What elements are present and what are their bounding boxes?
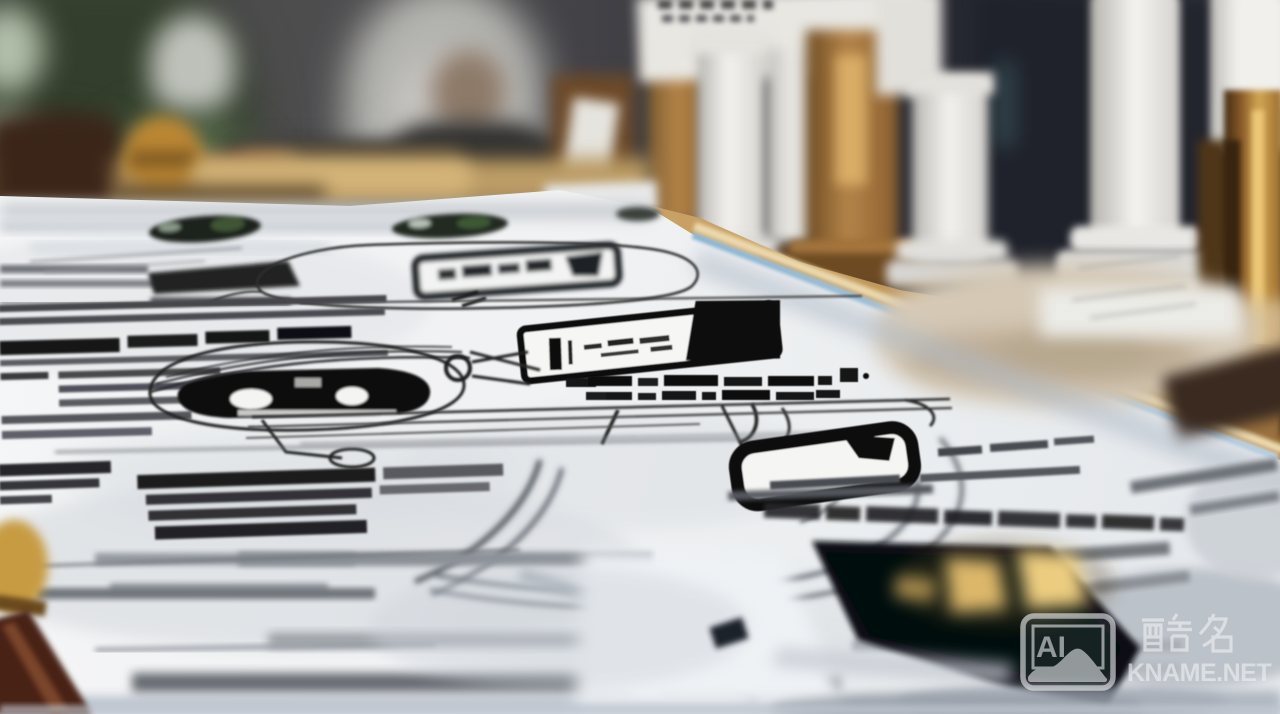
svg-text:KNAME.NET: KNAME.NET [1127, 659, 1271, 687]
svg-text:AI: AI [1036, 631, 1066, 664]
